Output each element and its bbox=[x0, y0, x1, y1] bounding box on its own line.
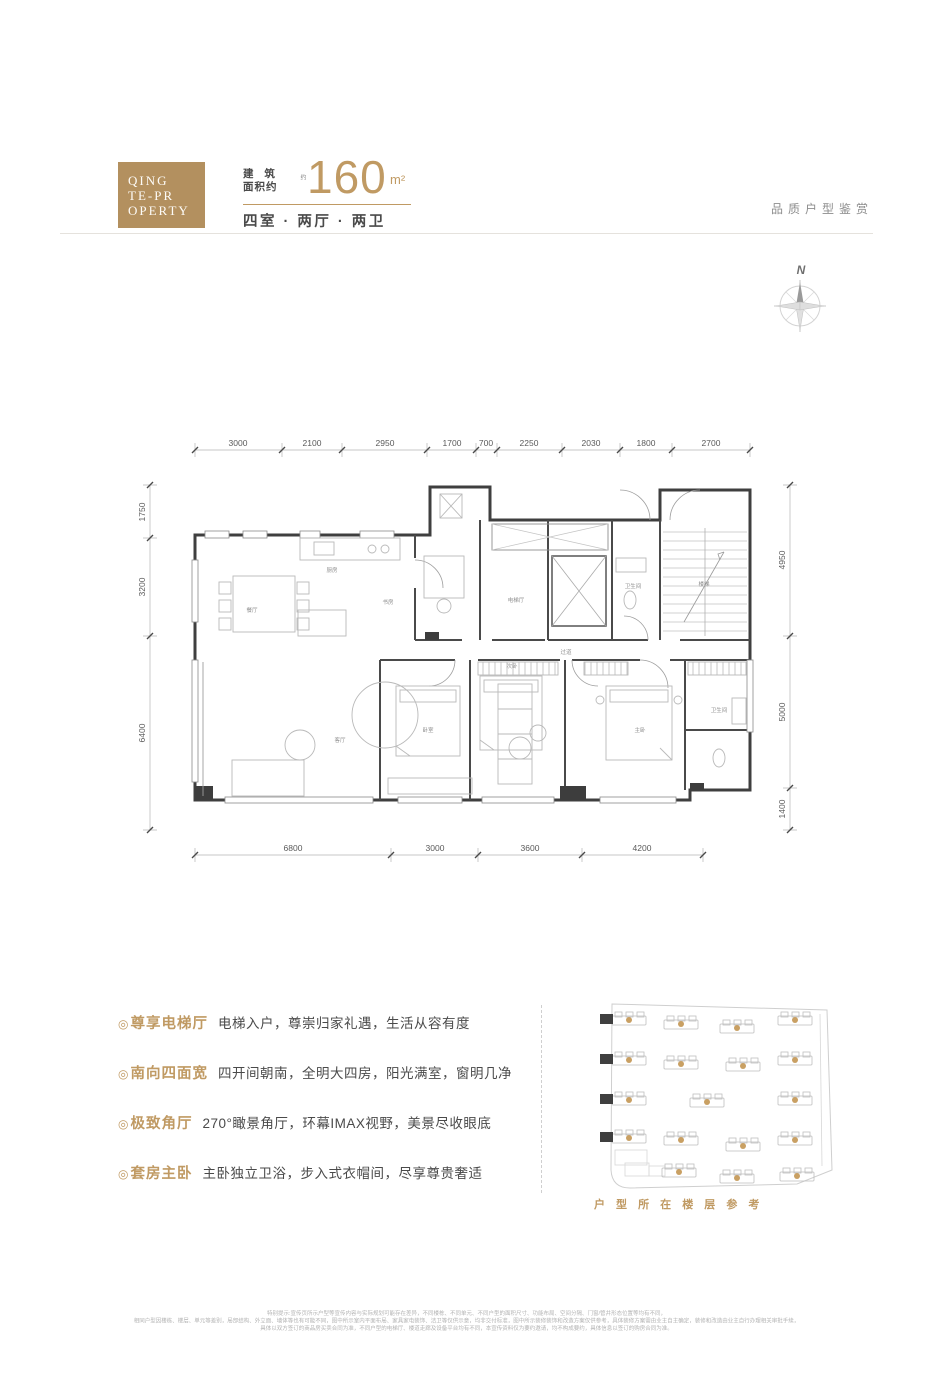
dim-label: 3000 bbox=[229, 438, 248, 448]
feature-desc: 四开间朝南，全明大四房，阳光满室，窗明几净 bbox=[218, 1066, 512, 1081]
room-label: 楼梯 bbox=[698, 580, 710, 588]
area-approx-note: 约 bbox=[298, 174, 307, 181]
dim-label: 3000 bbox=[426, 843, 445, 853]
logo-line-2: TE-PR bbox=[128, 188, 205, 203]
area-unit: m² bbox=[390, 172, 405, 187]
kitchen-counter bbox=[300, 538, 400, 560]
area-underline bbox=[243, 204, 411, 205]
toilet bbox=[624, 591, 636, 609]
tv-bench bbox=[388, 778, 472, 794]
logo-line-3: OPERTY bbox=[128, 203, 205, 218]
area-label: 建 筑 面积约 bbox=[243, 168, 279, 194]
dim-label: 1750 bbox=[137, 502, 147, 521]
bathtub bbox=[732, 698, 746, 724]
area-label-top: 建 筑 bbox=[243, 168, 279, 181]
dim-label: 3200 bbox=[137, 577, 147, 596]
feature-item: ◎南向四面宽四开间朝南，全明大四房，阳光满室，窗明几净 bbox=[118, 1062, 538, 1112]
room-label: 书房 bbox=[382, 598, 394, 606]
wardrobe bbox=[584, 662, 628, 675]
toilet bbox=[713, 749, 725, 767]
feature-title: 南向四面宽 bbox=[130, 1066, 208, 1082]
floor-plan: 3000 2100 2950 1700 700 2250 2030 1800 2… bbox=[130, 420, 810, 880]
room-label: 客厅 bbox=[334, 736, 346, 744]
site-buildings bbox=[612, 1012, 814, 1183]
room-label: 卧室 bbox=[422, 726, 434, 734]
compass-icon: N bbox=[765, 258, 835, 338]
study-desk bbox=[424, 556, 464, 598]
feature-desc: 270°瞰景角厅，环幕IMAX视野，美景尽收眼底 bbox=[202, 1116, 491, 1131]
room-label: 卫生间 bbox=[711, 706, 728, 714]
interior-walls bbox=[380, 520, 750, 800]
room-layout-line: 四室 · 两厅 · 两卫 bbox=[243, 210, 386, 231]
bed bbox=[396, 686, 460, 756]
page-title: 品质户型鉴赏 bbox=[771, 200, 873, 217]
room-label: 过道 bbox=[560, 648, 572, 656]
room-label: 厨房 bbox=[326, 566, 338, 574]
feature-item: ◎极致角厅270°瞰景角厅，环幕IMAX视野，美景尽收眼底 bbox=[118, 1112, 538, 1162]
furniture bbox=[203, 494, 746, 796]
dim-label: 6800 bbox=[284, 843, 303, 853]
disclaimer: 特别提示:宣传页所示户型等宣传内容与实际规划可能存在差异，不同楼栋、不同单元、不… bbox=[0, 1310, 933, 1332]
feature-desc: 主卧独立卫浴，步入式衣帽间，尽享尊贵奢适 bbox=[202, 1166, 482, 1181]
feature-bullet-icon: ◎ bbox=[118, 1067, 128, 1081]
site-plan bbox=[592, 998, 837, 1193]
area-label-bottom: 面积约 bbox=[243, 181, 279, 194]
feature-list: ◎尊享电梯厅电梯入户，尊崇归家礼遇，生活从容有度 ◎南向四面宽四开间朝南，全明大… bbox=[118, 1012, 538, 1212]
feature-bullet-icon: ◎ bbox=[118, 1167, 128, 1181]
kitchen-island bbox=[298, 610, 346, 636]
site-unit-dots bbox=[626, 1017, 800, 1181]
wardrobe bbox=[688, 662, 746, 675]
basin bbox=[616, 558, 646, 572]
disclaimer-line: 特别提示:宣传页所示户型等宣传内容与实际规划可能存在差异，不同楼栋、不同单元、不… bbox=[0, 1310, 933, 1317]
dim-label: 4950 bbox=[777, 550, 787, 569]
site-plan-caption: 户 型 所 在 楼 层 参 考 bbox=[594, 1196, 763, 1212]
room-label: 主卧 bbox=[634, 726, 646, 734]
dim-label: 2700 bbox=[702, 438, 721, 448]
plant bbox=[285, 730, 315, 760]
dim-label: 1700 bbox=[443, 438, 462, 448]
brand-logo: QING TE-PR OPERTY bbox=[118, 162, 205, 228]
dashed-divider bbox=[541, 1005, 542, 1193]
dim-label: 1800 bbox=[637, 438, 656, 448]
dining-table bbox=[233, 576, 295, 632]
area-value: 160 bbox=[307, 150, 387, 204]
header-divider bbox=[60, 233, 873, 234]
feature-title: 尊享电梯厅 bbox=[130, 1016, 208, 1032]
dim-label: 6400 bbox=[137, 723, 147, 742]
brochure-page: { "header": { "logo_lines": ["QING", "TE… bbox=[0, 0, 933, 1400]
disclaimer-line: 相同户型因楼栋、楼层、单元等差别，局部结构、外立面、墙体等也有可能不同，图中所示… bbox=[0, 1317, 933, 1324]
elevator-shaft bbox=[492, 524, 608, 626]
dim-label: 3600 bbox=[521, 843, 540, 853]
room-label: 电梯厅 bbox=[508, 596, 525, 604]
site-annex bbox=[615, 1014, 822, 1176]
feature-bullet-icon: ◎ bbox=[118, 1017, 128, 1031]
dim-label: 2030 bbox=[582, 438, 601, 448]
feature-item: ◎尊享电梯厅电梯入户，尊崇归家礼遇，生活从容有度 bbox=[118, 1012, 538, 1062]
columns bbox=[195, 632, 704, 800]
logo-line-1: QING bbox=[128, 173, 205, 188]
feature-title: 极致角厅 bbox=[130, 1116, 192, 1132]
feature-title: 套房主卧 bbox=[130, 1166, 192, 1182]
room-label: 卫生间 bbox=[625, 582, 642, 590]
compass-n-label: N bbox=[797, 263, 806, 277]
dim-label: 700 bbox=[479, 438, 493, 448]
round-table bbox=[352, 682, 418, 748]
windows bbox=[192, 531, 753, 803]
dim-label: 2950 bbox=[376, 438, 395, 448]
dim-label: 5000 bbox=[777, 702, 787, 721]
wardrobe bbox=[478, 662, 558, 675]
dim-label: 1400 bbox=[777, 799, 787, 818]
writing-desk bbox=[232, 760, 304, 796]
feature-item: ◎套房主卧主卧独立卫浴，步入式衣帽间，尽享尊贵奢适 bbox=[118, 1162, 538, 1212]
dim-label: 2250 bbox=[520, 438, 539, 448]
room-labels: 餐厅 厨房 书房 电梯厅 卫生间 楼梯 客厅 卧室 次卧 主卧 卫生间 过道 bbox=[246, 566, 727, 744]
room-label: 餐厅 bbox=[246, 606, 258, 614]
room-label: 次卧 bbox=[506, 662, 518, 670]
dim-label: 4200 bbox=[633, 843, 652, 853]
bed bbox=[606, 686, 672, 760]
dim-label: 2100 bbox=[303, 438, 322, 448]
feature-desc: 电梯入户，尊崇归家礼遇，生活从容有度 bbox=[218, 1016, 470, 1031]
disclaimer-line: 具体以双方签订的商品房买卖合同为准，不同户型的电梯厅、楼道走廊及设备平台均有不同… bbox=[0, 1325, 933, 1332]
study-chair bbox=[437, 599, 451, 613]
feature-bullet-icon: ◎ bbox=[118, 1117, 128, 1131]
outer-walls bbox=[195, 487, 750, 800]
